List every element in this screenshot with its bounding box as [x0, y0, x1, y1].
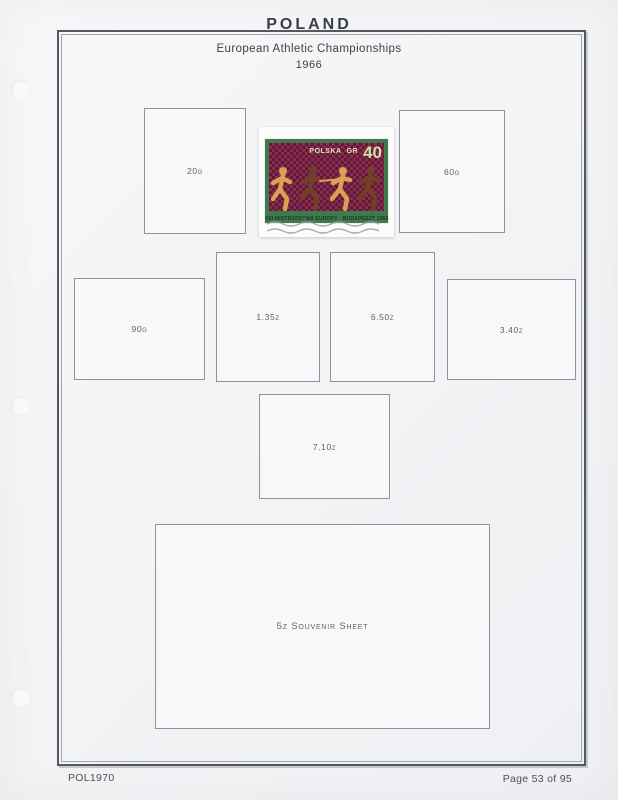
placeholder-label: 3.40z — [500, 325, 523, 335]
stamp-placeholder-135z: 1.35z — [216, 252, 320, 382]
album-page: POLAND European Athletic Championships 1… — [0, 0, 618, 800]
stamp-country-text: POLSKA — [309, 148, 341, 155]
placeholder-label: 60g — [444, 167, 460, 177]
stamp-placeholder-340z: 3.40z — [447, 279, 576, 380]
stamp-currency-text: GR — [347, 148, 359, 155]
placeholder-label: 6.50z — [371, 312, 394, 322]
stamp-placeholder-650z: 6.50z — [330, 252, 435, 382]
stamp-placeholder-90g: 90g — [74, 278, 205, 380]
stamp-placeholder-60g: 60g — [399, 110, 505, 233]
page-number: Page 53 of 95 — [503, 773, 572, 785]
stamp-placeholder-20g: 20g — [144, 108, 246, 234]
page-title: POLAND — [0, 16, 618, 34]
catalog-code: POL1970 — [68, 772, 114, 784]
page-subtitle: European Athletic Championships — [0, 43, 618, 55]
stamp-placeholder-710z: 7.10z — [259, 394, 390, 499]
placeholder-label: 5z Souvenir Sheet — [277, 621, 369, 632]
placeholder-label: 7.10z — [313, 442, 336, 452]
punch-hole — [11, 396, 30, 415]
placeholder-label: 90g — [132, 324, 148, 334]
punch-hole — [11, 80, 30, 99]
page-year: 1966 — [0, 59, 618, 71]
placeholder-label: 1.35z — [256, 312, 279, 322]
placeholder-label: 20g — [187, 166, 203, 176]
runners-illustration — [271, 161, 383, 211]
stamp-artwork: POLSKA GR 40 — [269, 143, 384, 211]
stamp-denomination: 40 — [363, 144, 382, 161]
punch-hole — [11, 688, 30, 707]
souvenir-sheet-placeholder: 5z Souvenir Sheet — [155, 524, 490, 729]
stamp-40gr: POLSKA GR 40 — [265, 139, 388, 223]
mounted-stamp-40gr: POLSKA GR 40 — [259, 127, 394, 237]
postmark-cancellation — [267, 220, 387, 236]
